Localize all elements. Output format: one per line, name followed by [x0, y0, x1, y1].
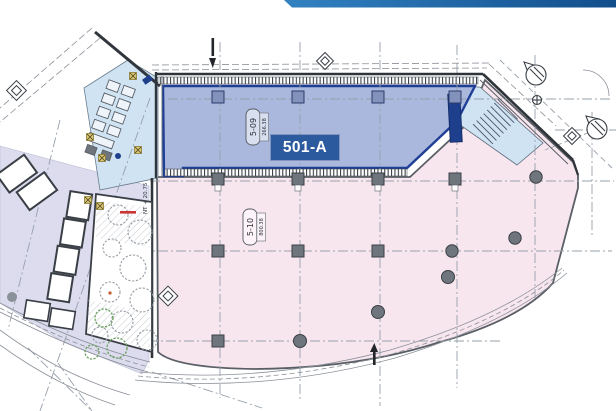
floor-plan-drawing: 5-09 266.38 5-10 800.38 NT + 20.75 [0, 0, 616, 411]
glazing-band-top [158, 77, 478, 84]
unit-area-5-10: 800.38 [259, 218, 265, 236]
top-banner [284, 0, 616, 8]
glazing-band-mid [165, 169, 407, 176]
unit-id-5-09: 5-09 [249, 118, 258, 136]
level-note: NT + 20.75 [143, 182, 149, 214]
unit-id-5-10: 5-10 [246, 218, 255, 236]
unit-501A-badge[interactable]: 501-A [271, 135, 339, 160]
floorplan-viewport: 5-09 266.38 5-10 800.38 NT + 20.75 501-A [0, 0, 616, 411]
unit-area-5-09: 266.38 [262, 118, 268, 136]
